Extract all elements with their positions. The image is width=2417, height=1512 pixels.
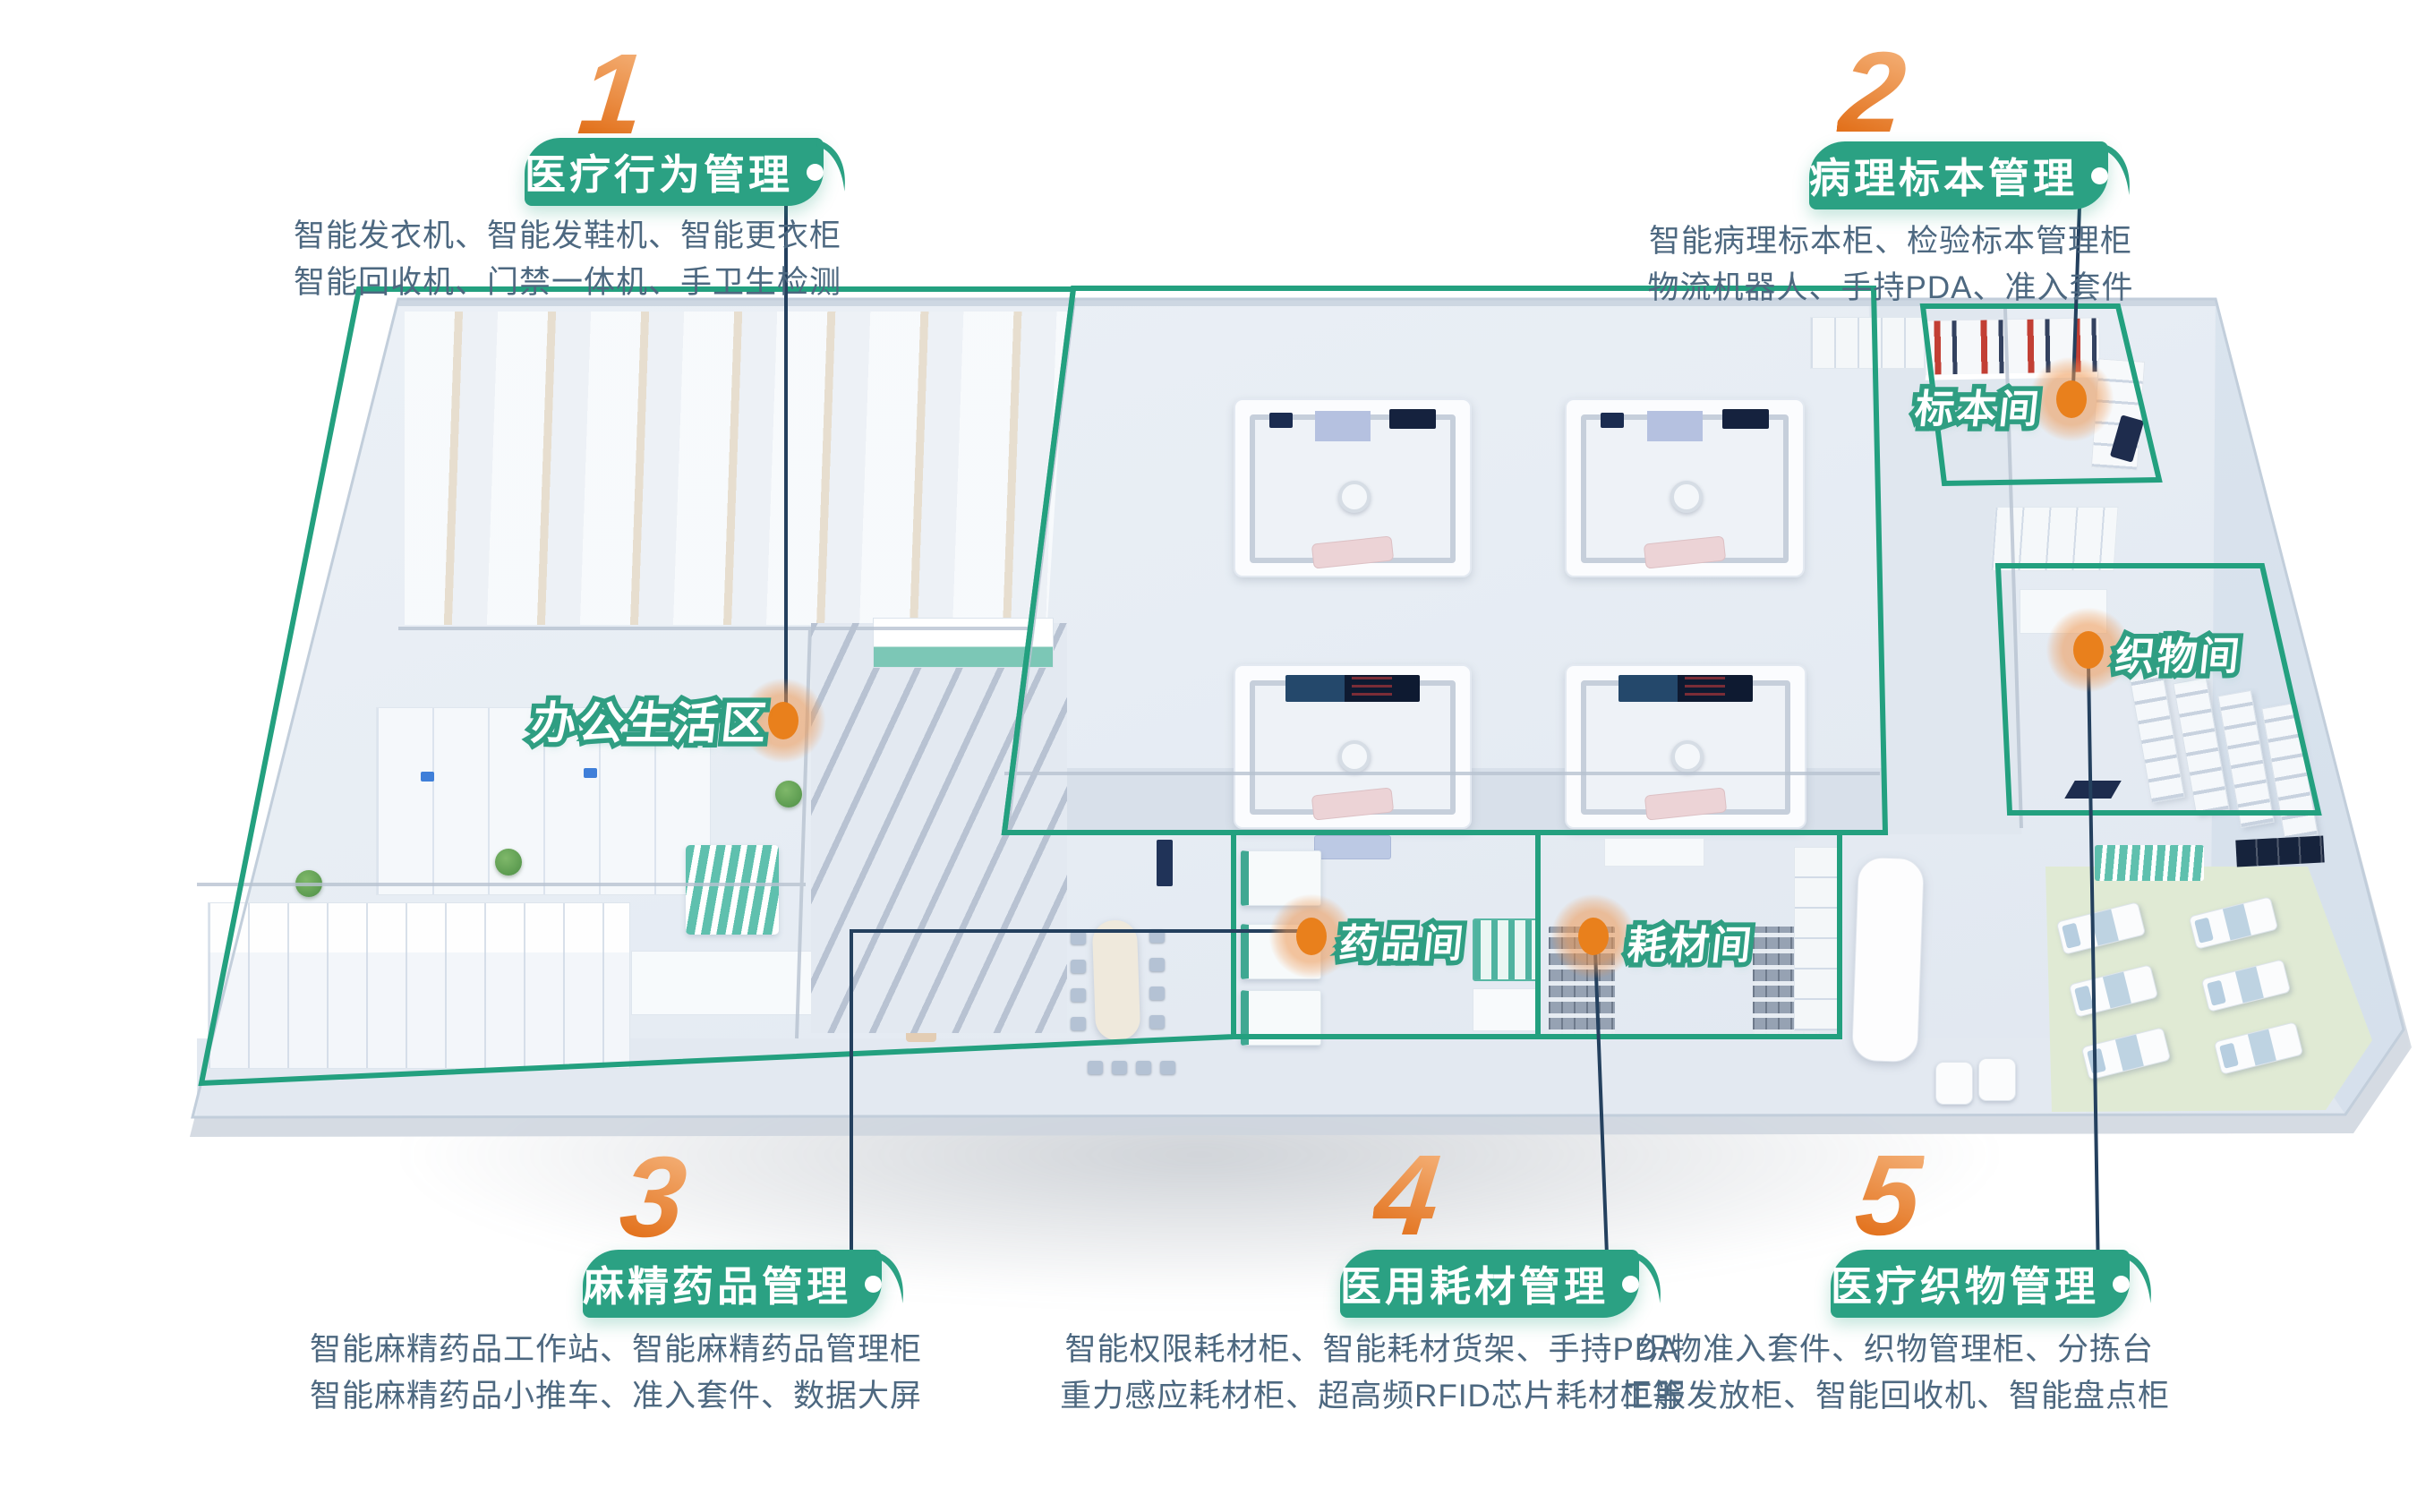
isometric-hospital-floorplan-infographic: 办公生活区 办公生活区 标本间 标本间 织物间 织物间 药品间 药品间 耗材间 … xyxy=(0,0,2417,1512)
desc-line: 智能发衣机、智能发鞋机、智能更衣柜 xyxy=(209,213,926,260)
annotation-title-4: 医用耗材管理 xyxy=(1340,1254,1609,1313)
annotation-pill-4: 医用耗材管理 xyxy=(1340,1250,1639,1318)
marker-dot xyxy=(2056,380,2087,418)
annotation-pill-2: 病理标本管理 xyxy=(1809,141,2108,209)
room-label-text: 标本间 xyxy=(1912,377,2045,434)
desc-line: 物流机器人、手持PDA、准入套件 xyxy=(1533,265,2249,312)
desc-line: 智能麻精药品工作站、智能麻精药品管理柜 xyxy=(258,1327,974,1373)
desc-line: 工服发放柜、智能回收机、智能盘点柜 xyxy=(1538,1373,2254,1420)
zone-office-living xyxy=(201,289,1234,1083)
pill-tail-icon xyxy=(875,1250,912,1305)
desc-line: 智能回收机、门禁一体机、手卫生检测 xyxy=(209,260,926,306)
annotation-desc-3: 智能麻精药品工作站、智能麻精药品管理柜 智能麻精药品小推车、准入套件、数据大屏 xyxy=(258,1327,974,1420)
annotation-number-1: 1 xyxy=(574,38,650,152)
desc-line: 织物准入套件、织物管理柜、分拣台 xyxy=(1538,1327,2254,1373)
pill-tail-icon xyxy=(1632,1250,1670,1305)
annotation-title-2: 病理标本管理 xyxy=(1809,146,2078,205)
annotation-pill-1: 医疗行为管理 xyxy=(525,138,824,206)
annotation-number-2: 2 xyxy=(1834,36,1910,150)
annotation-title-1: 医疗行为管理 xyxy=(525,142,793,201)
marker-dot xyxy=(2073,631,2104,669)
annotation-title-5: 医疗织物管理 xyxy=(1831,1254,2099,1313)
annotation-desc-1: 智能发衣机、智能发鞋机、智能更衣柜 智能回收机、门禁一体机、手卫生检测 xyxy=(209,213,926,306)
marker-dot xyxy=(1296,918,1327,955)
pill-tail-icon xyxy=(2101,141,2139,197)
pill-tail-icon xyxy=(2122,1250,2160,1305)
annotation-pill-3: 麻精药品管理 xyxy=(583,1250,882,1318)
annotation-number-3: 3 xyxy=(615,1140,691,1255)
room-label-text: 织物间 xyxy=(2113,624,2245,681)
annotation-desc-2: 智能病理标本柜、检验标本管理柜 物流机器人、手持PDA、准入套件 xyxy=(1533,218,2249,312)
annotation-number-5: 5 xyxy=(1850,1139,1926,1253)
desc-line: 智能麻精药品小推车、准入套件、数据大屏 xyxy=(258,1373,974,1420)
marker-dot xyxy=(768,702,799,739)
room-label-text: 耗材间 xyxy=(1625,913,1757,970)
desc-line: 智能病理标本柜、检验标本管理柜 xyxy=(1533,218,2249,265)
marker-consumable-room xyxy=(1550,893,1636,979)
connector-5 xyxy=(2088,664,2098,1278)
marker-dot xyxy=(1578,918,1609,955)
annotation-pill-5: 医疗织物管理 xyxy=(1831,1250,2130,1318)
pill-tail-icon xyxy=(816,138,854,193)
annotation-number-4: 4 xyxy=(1369,1139,1445,1253)
annotation-title-3: 麻精药品管理 xyxy=(583,1254,851,1313)
annotation-desc-5: 织物准入套件、织物管理柜、分拣台 工服发放柜、智能回收机、智能盘点柜 xyxy=(1538,1327,2254,1420)
zone-operating xyxy=(1004,288,1885,833)
room-label-text: 药品间 xyxy=(1337,911,1469,969)
room-label-text: 办公生活区 xyxy=(528,688,773,752)
